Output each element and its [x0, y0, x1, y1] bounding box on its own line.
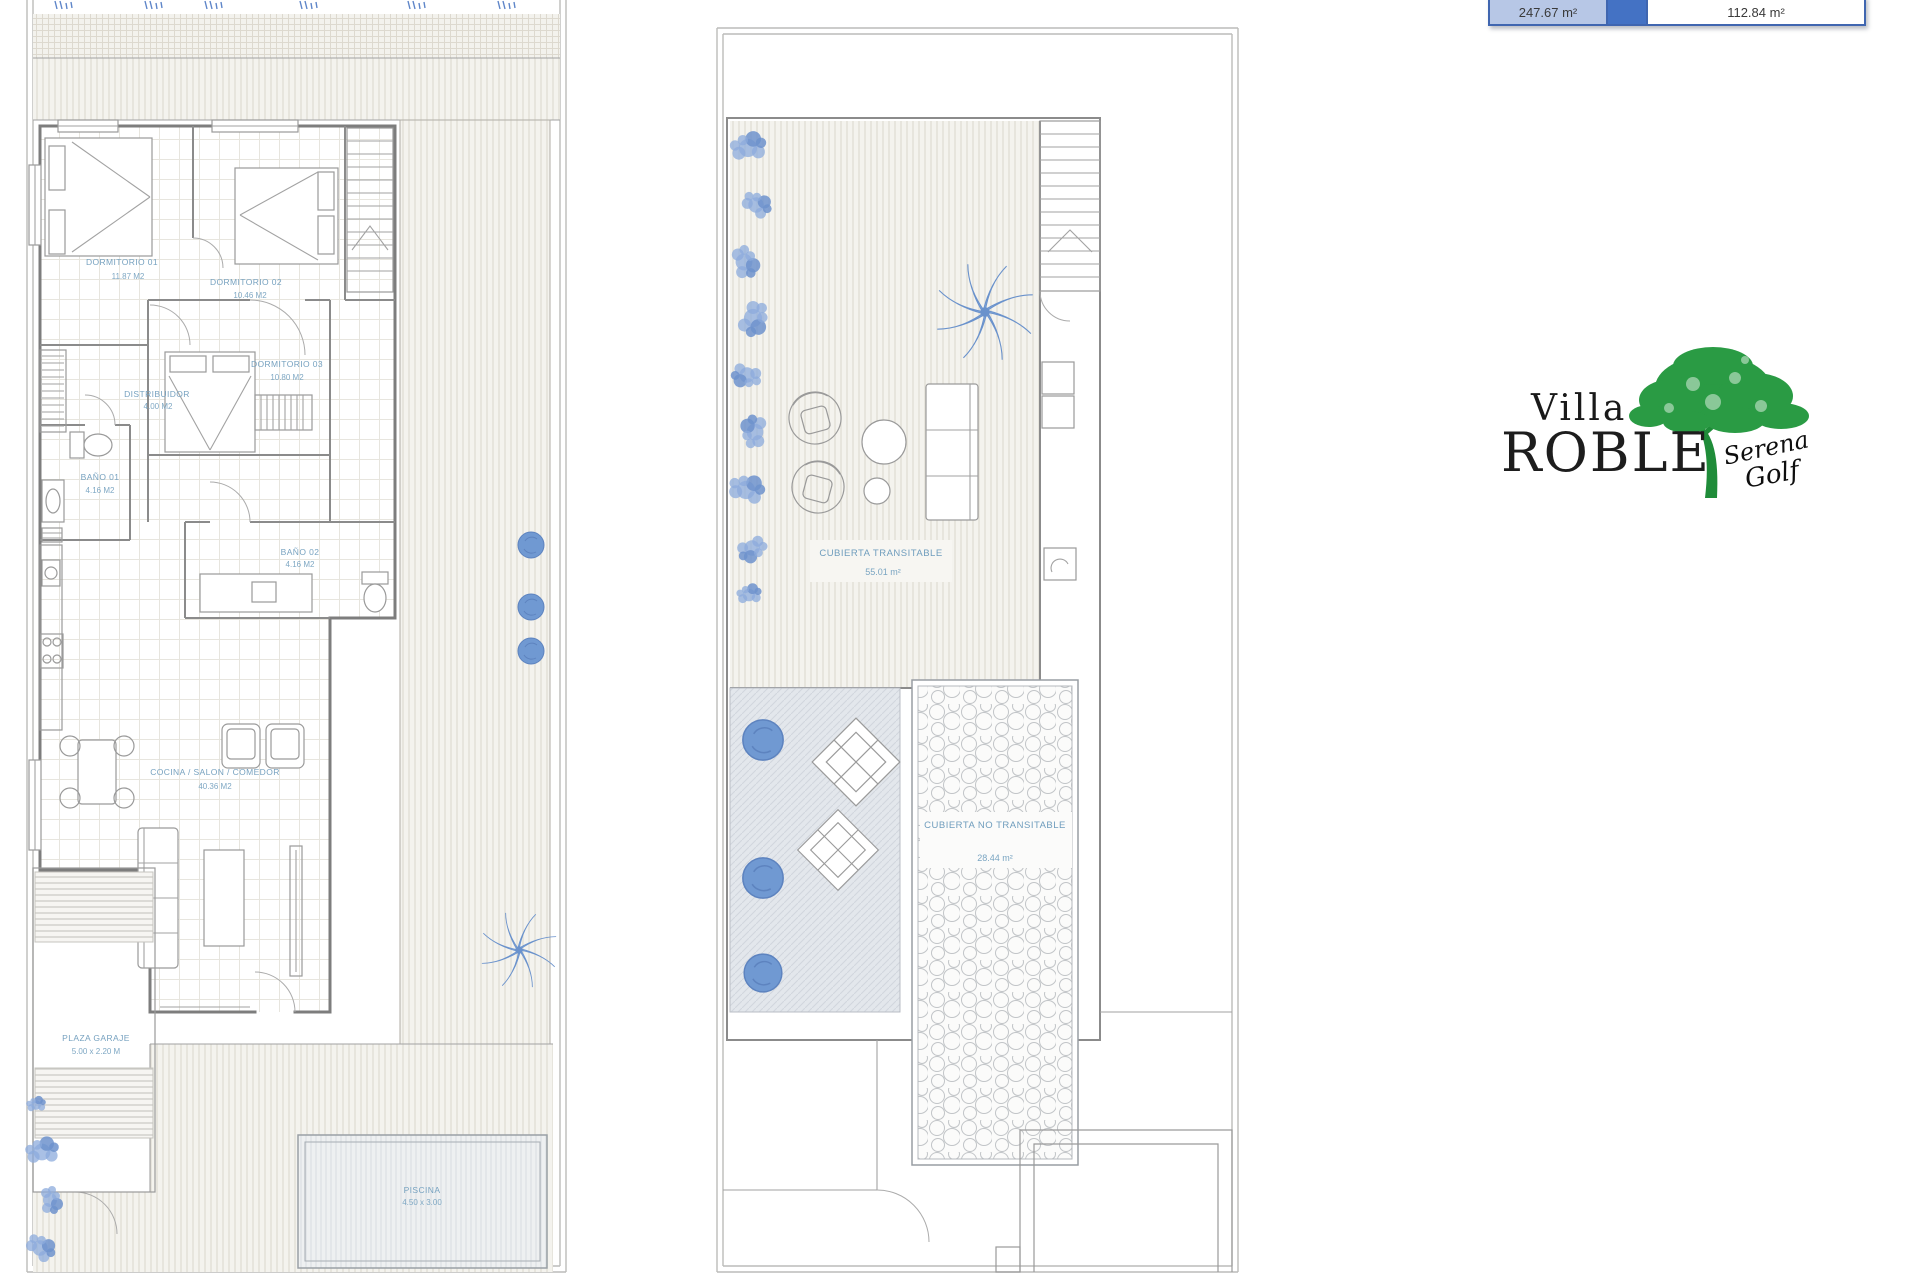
plant-pot-icon — [518, 594, 544, 620]
room-label-bano-01: BAÑO 01 — [81, 472, 120, 482]
utility-boxes — [1042, 362, 1076, 580]
staircase-roof — [1040, 121, 1100, 321]
room-area-cocina-salon: 40.36 M2 — [198, 782, 232, 791]
dimension-text-row — [55, 1, 515, 9]
bed-dormitorio-03 — [165, 352, 255, 452]
roof-sofa — [926, 384, 978, 520]
room-area-plaza-garaje: 5.00 x 2.20 M — [72, 1047, 121, 1056]
coffee-table — [204, 850, 244, 946]
table-separator-cell — [1608, 0, 1648, 24]
ground-floor-panel: DORMITORIO 01 11.87 M2 DORMITORIO 02 10.… — [22, 0, 566, 1272]
room-area-bano-01: 4.16 M2 — [86, 486, 115, 495]
sink-bano-01 — [42, 480, 64, 522]
area-summary-table: 247.67 m² 112.84 m² — [1488, 0, 1866, 26]
bed-dormitorio-01 — [45, 138, 152, 256]
villa-roble-logo: Villa ROBLE Serena Golf — [1495, 336, 1835, 511]
plant-pot-icon — [743, 720, 783, 760]
walkable-roof-terrace — [730, 121, 1040, 688]
room-label-cubierta-transitable: CUBIERTA TRANSITABLE — [819, 548, 942, 559]
room-label-distribuidor: DISTRIBUIDOR — [124, 389, 190, 399]
room-area-bano-02: 4.16 M2 — [286, 560, 315, 569]
terrace-band-hatched — [33, 14, 560, 58]
floor-plan-canvas: DORMITORIO 01 11.87 M2 DORMITORIO 02 10.… — [0, 0, 1920, 1280]
toilet-bano-02 — [362, 572, 388, 612]
area-value-right: 112.84 m² — [1648, 0, 1864, 24]
room-area-dormitorio-03: 10.80 M2 — [270, 373, 304, 382]
area-value-left: 247.67 m² — [1490, 0, 1608, 24]
bed-dormitorio-02 — [235, 168, 338, 264]
plant-pot-icon — [743, 858, 783, 898]
room-area-cubierta-no-transitable: 28.44 m² — [977, 853, 1013, 863]
non-walkable-roof — [912, 680, 1078, 1165]
room-area-piscina: 4.50 x 3.00 — [402, 1198, 442, 1207]
room-label-piscina: PISCINA — [404, 1185, 441, 1195]
room-area-distribuidor: 4.00 M2 — [144, 402, 173, 411]
logo-title-main: ROBLE — [1501, 426, 1711, 480]
room-area-dormitorio-01: 11.87 M2 — [112, 272, 145, 281]
room-area-cubierta-transitable: 55.01 m² — [865, 567, 901, 577]
plant-pot-icon — [518, 532, 544, 558]
room-label-dormitorio-02: DORMITORIO 02 — [210, 277, 282, 287]
room-label-dormitorio-03: DORMITORIO 03 — [251, 359, 323, 369]
terrace-band-striped — [33, 58, 560, 120]
toilet-bano-01 — [70, 432, 112, 458]
vanity-bano-02 — [200, 574, 312, 612]
room-label-cocina-salon: COCINA / SALON / COMEDOR — [150, 767, 280, 777]
plant-pot-icon — [518, 638, 544, 664]
plant-pot-icon — [744, 954, 782, 992]
room-area-dormitorio-02: 10.46 M2 — [233, 291, 267, 300]
side-terrace-strip — [400, 120, 550, 1044]
room-label-bano-02: BAÑO 02 — [281, 547, 320, 557]
roof-plan-panel: CUBIERTA TRANSITABLE 55.01 m² CUBIERTA N… — [717, 28, 1238, 1272]
room-label-dormitorio-01: DORMITORIO 01 — [86, 257, 158, 267]
room-label-cubierta-no-transitable: CUBIERTA NO TRANSITABLE — [924, 820, 1066, 831]
room-label-plaza-garaje: PLAZA GARAJE — [62, 1033, 130, 1043]
